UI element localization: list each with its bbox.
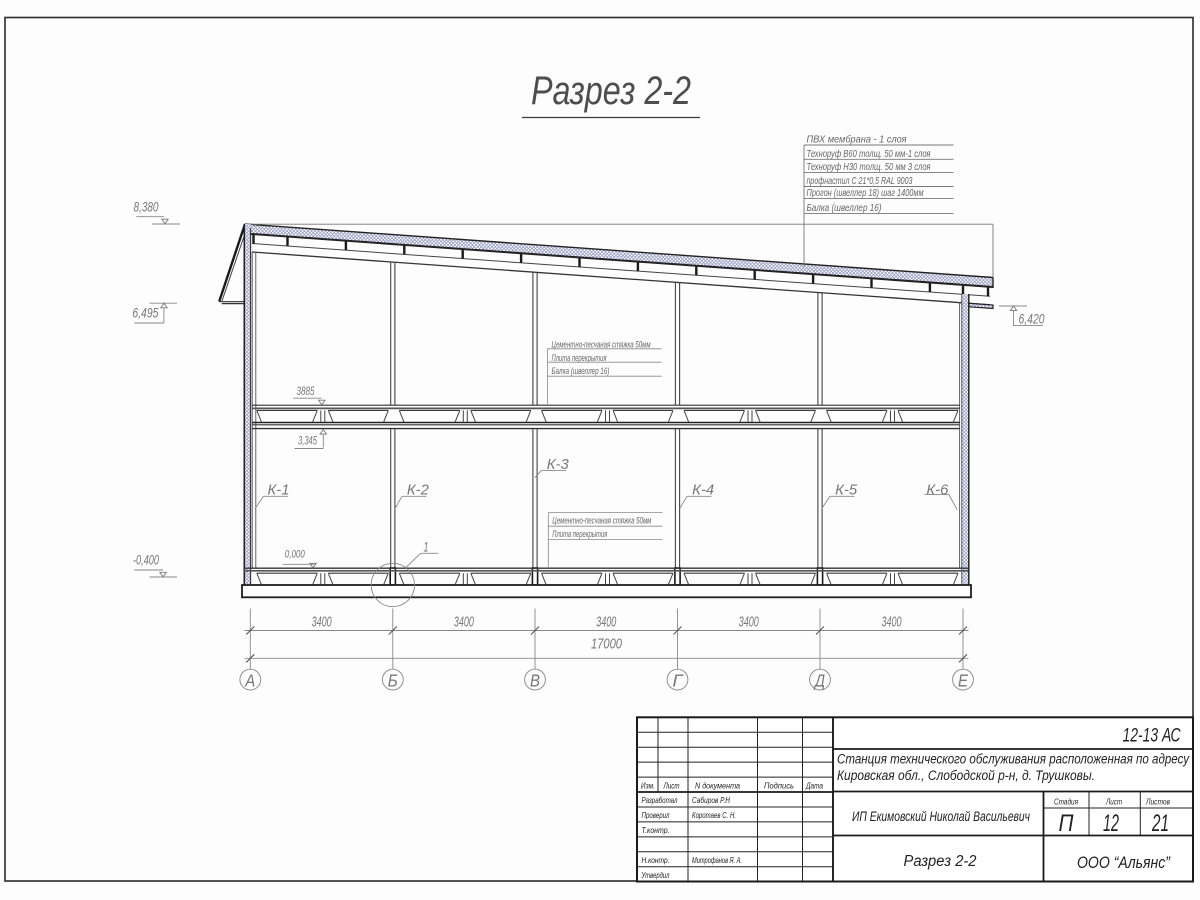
svg-text:3400: 3400 — [454, 615, 474, 631]
svg-text:Митрофанов Я. А.: Митрофанов Я. А. — [692, 855, 742, 865]
svg-text:профнастил С 21*0,5 RAL 9003: профнастил С 21*0,5 RAL 9003 — [807, 175, 913, 187]
svg-text:В: В — [530, 670, 540, 690]
svg-text:К-6: К-6 — [926, 482, 949, 498]
svg-text:Станция технического обслужива: Станция технического обслуживания распол… — [837, 752, 1190, 767]
svg-text:ООО “Альянс”: ООО “Альянс” — [1077, 854, 1171, 872]
svg-text:3400: 3400 — [739, 615, 759, 631]
svg-text:Коротаев С. Н.: Коротаев С. Н. — [692, 810, 736, 820]
svg-text:N документа: N документа — [695, 780, 740, 790]
svg-text:Плита перекрытия: Плита перекрытия — [552, 529, 607, 540]
svg-text:Б: Б — [388, 670, 398, 690]
svg-text:3,345: 3,345 — [298, 434, 317, 448]
svg-text:3400: 3400 — [312, 615, 332, 631]
svg-text:А: А — [244, 670, 255, 690]
svg-text:Разрез 2-2: Разрез 2-2 — [904, 853, 977, 870]
svg-text:Техноруф В60 толщ. 50 мм-1 сло: Техноруф В60 толщ. 50 мм-1 слоя — [807, 148, 931, 160]
svg-text:Подпись: Подпись — [764, 780, 794, 790]
svg-text:3885: 3885 — [297, 384, 315, 398]
svg-text:6,420: 6,420 — [1019, 310, 1045, 326]
svg-text:Разрез 2-2: Разрез 2-2 — [531, 69, 691, 113]
svg-text:Разработал: Разработал — [642, 795, 678, 805]
svg-text:Проверил: Проверил — [642, 810, 670, 820]
svg-text:Е: Е — [958, 670, 968, 690]
svg-text:8,380: 8,380 — [134, 199, 159, 215]
svg-text:Цементно-песчаная стяжка 50мм: Цементно-песчаная стяжка 50мм — [552, 515, 651, 526]
svg-text:Сабиров Р.Н: Сабиров Р.Н — [692, 795, 731, 805]
svg-text:Кировская обл., Слободской р-н: Кировская обл., Слободской р-н, д. Трушк… — [837, 768, 1095, 783]
svg-text:Дата: Дата — [805, 780, 823, 790]
svg-text:ПВХ мембрана - 1 слоя: ПВХ мембрана - 1 слоя — [807, 134, 908, 146]
svg-text:21: 21 — [1151, 810, 1169, 837]
svg-text:12: 12 — [1103, 810, 1119, 837]
svg-text:1: 1 — [424, 539, 429, 555]
svg-text:Стадия: Стадия — [1054, 797, 1078, 807]
svg-text:-0,400: -0,400 — [133, 552, 159, 568]
svg-text:17000: 17000 — [591, 637, 622, 653]
svg-text:Прогон (швеллер 18) шаг 1400мм: Прогон (швеллер 18) шаг 1400мм — [807, 188, 924, 199]
svg-text:Листов: Листов — [1145, 797, 1170, 807]
svg-text:3400: 3400 — [882, 615, 902, 631]
svg-text:0,000: 0,000 — [285, 549, 306, 561]
svg-text:Утвердил: Утвердил — [641, 870, 670, 880]
svg-text:П: П — [1059, 810, 1075, 837]
svg-text:12-13 АС: 12-13 АС — [1123, 726, 1181, 747]
svg-text:Изм.: Изм. — [641, 780, 655, 790]
svg-text:3400: 3400 — [596, 615, 616, 631]
svg-text:6,495: 6,495 — [132, 305, 158, 321]
svg-text:Балка (швеллер 16): Балка (швеллер 16) — [807, 203, 882, 214]
svg-text:Т.контр.: Т.контр. — [642, 825, 670, 835]
svg-text:Г: Г — [673, 670, 685, 690]
svg-text:Балка (швеллер 16): Балка (швеллер 16) — [552, 366, 610, 377]
svg-text:Лист: Лист — [663, 780, 680, 790]
svg-text:Техноруф Н30 толщ. 50 мм 3 сло: Техноруф Н30 толщ. 50 мм 3 слоя — [807, 161, 931, 173]
svg-text:Д: Д — [813, 670, 825, 690]
svg-text:ИП Екимовский Николай Васильев: ИП Екимовский Николай Васильевич — [852, 809, 1030, 824]
svg-text:Н.контр.: Н.контр. — [642, 855, 670, 865]
svg-text:Лист: Лист — [1105, 797, 1122, 807]
